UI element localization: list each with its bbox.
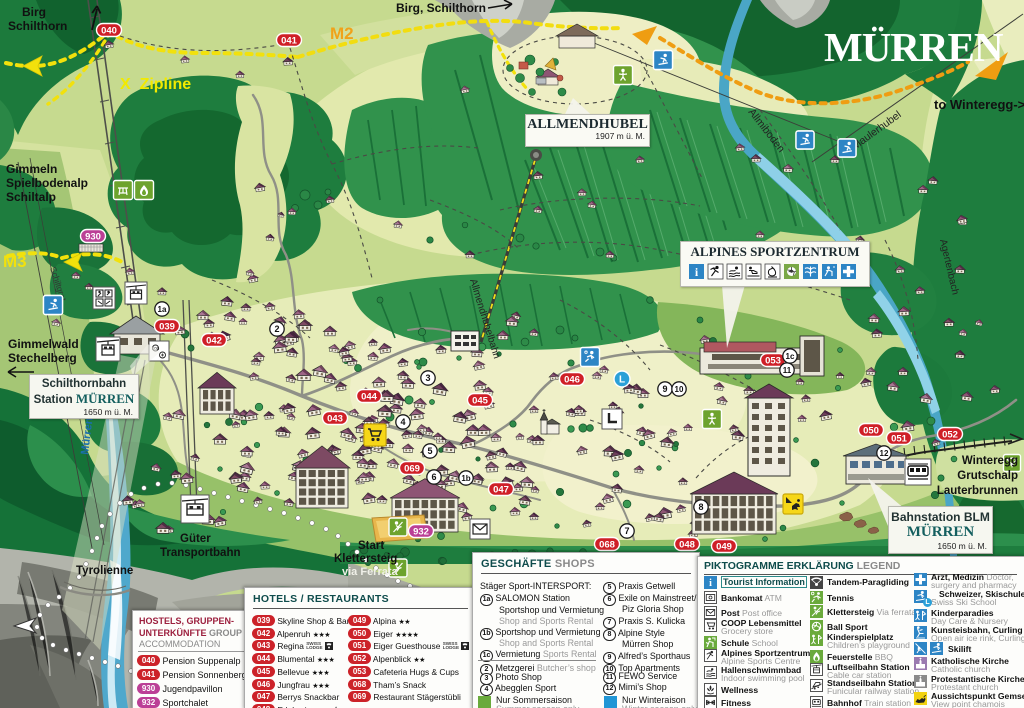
svg-text:043: 043	[327, 414, 343, 425]
svg-text:047: 047	[493, 485, 509, 496]
svg-text:051: 051	[891, 434, 908, 445]
svg-text:068: 068	[599, 540, 615, 551]
svg-text:4: 4	[400, 417, 405, 427]
svg-text:039: 039	[159, 322, 175, 333]
svg-text:042: 042	[206, 336, 222, 347]
svg-text:3: 3	[425, 373, 430, 383]
svg-text:7: 7	[624, 526, 629, 536]
svg-text:2: 2	[274, 324, 279, 334]
svg-text:11: 11	[783, 366, 792, 375]
svg-text:050: 050	[863, 426, 879, 437]
svg-text:12: 12	[880, 449, 889, 458]
svg-text:048: 048	[679, 540, 695, 551]
svg-text:9: 9	[662, 384, 667, 394]
svg-text:041: 041	[281, 36, 298, 47]
svg-text:8: 8	[698, 502, 703, 512]
svg-text:049: 049	[716, 542, 732, 553]
svg-text:052: 052	[942, 430, 958, 441]
svg-text:040: 040	[101, 26, 117, 37]
svg-text:053: 053	[765, 356, 781, 367]
svg-text:100: 100	[152, 346, 160, 351]
svg-text:1c: 1c	[786, 352, 795, 361]
svg-text:930: 930	[85, 232, 101, 243]
svg-text:044: 044	[361, 392, 378, 403]
svg-text:L: L	[619, 375, 625, 386]
svg-text:1b: 1b	[461, 474, 470, 483]
svg-text:6: 6	[431, 472, 436, 482]
svg-text:1a: 1a	[158, 305, 167, 314]
svg-text:932: 932	[413, 527, 429, 538]
svg-text:i: i	[709, 578, 712, 589]
svg-text:045: 045	[472, 396, 489, 407]
svg-text:10: 10	[675, 385, 684, 394]
svg-text:046: 046	[564, 375, 580, 386]
svg-text:5: 5	[427, 446, 432, 456]
svg-text:069: 069	[404, 464, 420, 475]
